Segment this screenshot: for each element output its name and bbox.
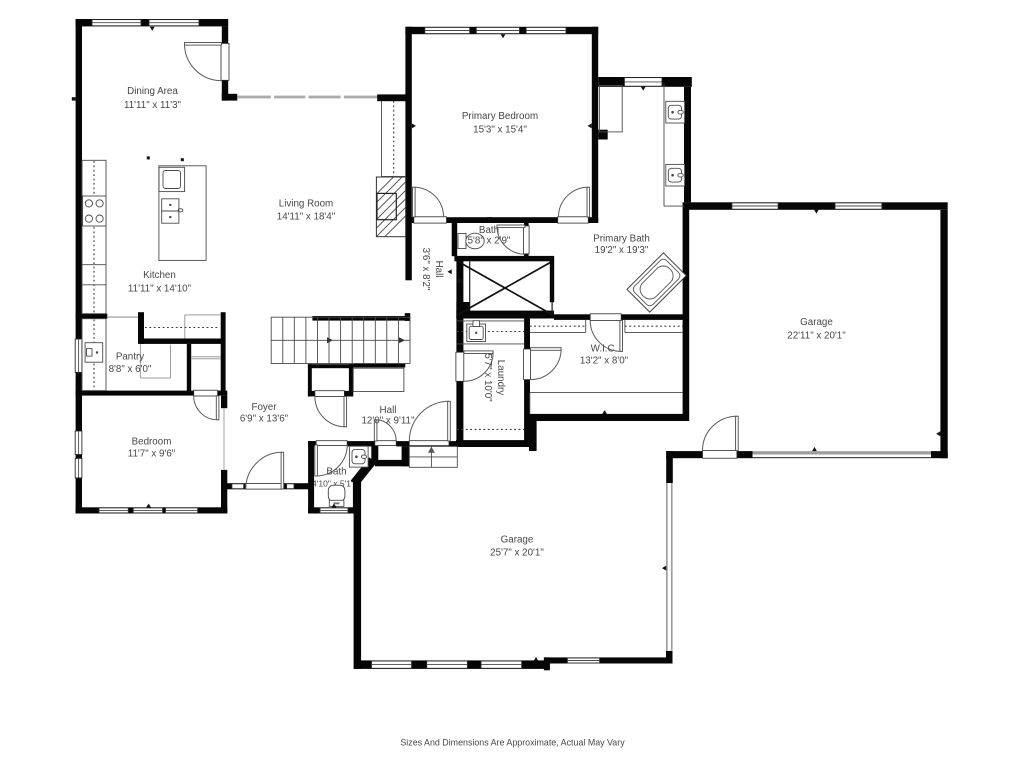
svg-text:Hall: Hall	[433, 261, 444, 278]
svg-text:3'6" x 8'2": 3'6" x 8'2"	[420, 248, 431, 291]
svg-text:15'3" x 15'4": 15'3" x 15'4"	[473, 124, 527, 135]
svg-text:5'7" x 10'0": 5'7" x 10'0"	[482, 353, 493, 402]
svg-text:Garage: Garage	[800, 317, 833, 328]
svg-text:5'8" x 2'9": 5'8" x 2'9"	[468, 236, 511, 247]
svg-text:Living Room: Living Room	[279, 198, 333, 209]
svg-text:Bath: Bath	[479, 225, 499, 236]
svg-text:11'11" x 11'3": 11'11" x 11'3"	[124, 100, 182, 111]
svg-text:Kitchen: Kitchen	[143, 270, 176, 281]
svg-text:Hall: Hall	[380, 405, 397, 416]
svg-text:Foyer: Foyer	[251, 402, 277, 413]
svg-text:Bedroom: Bedroom	[132, 437, 172, 448]
svg-text:19'2" x 19'3": 19'2" x 19'3"	[595, 245, 649, 256]
svg-text:W.I.C.: W.I.C.	[591, 343, 618, 354]
svg-text:11'11" x 14'10": 11'11" x 14'10"	[128, 283, 192, 294]
svg-text:Bath: Bath	[326, 467, 346, 478]
svg-text:14'11" x 18'4": 14'11" x 18'4"	[277, 211, 336, 222]
svg-text:Dining Area: Dining Area	[127, 86, 178, 97]
svg-text:25'7" x 20'1": 25'7" x 20'1"	[490, 548, 544, 559]
svg-text:6'9" x 13'6": 6'9" x 13'6"	[240, 414, 289, 425]
svg-text:13'2" x 8'0": 13'2" x 8'0"	[580, 356, 629, 367]
svg-text:12'0" x 9'11": 12'0" x 9'11"	[361, 416, 415, 427]
svg-text:Laundry: Laundry	[495, 360, 506, 396]
svg-text:11'7" x 9'6": 11'7" x 9'6"	[128, 448, 176, 459]
svg-text:22'11" x 20'1": 22'11" x 20'1"	[787, 330, 846, 341]
svg-text:Garage: Garage	[501, 535, 534, 546]
svg-text:Primary Bedroom: Primary Bedroom	[462, 111, 538, 122]
svg-text:Sizes And Dimensions Are Appro: Sizes And Dimensions Are Approximate, Ac…	[400, 737, 625, 747]
svg-text:Pantry: Pantry	[116, 351, 144, 362]
svg-text:8'8" x 6'0": 8'8" x 6'0"	[109, 364, 152, 375]
svg-text:Primary Bath: Primary Bath	[593, 233, 650, 244]
